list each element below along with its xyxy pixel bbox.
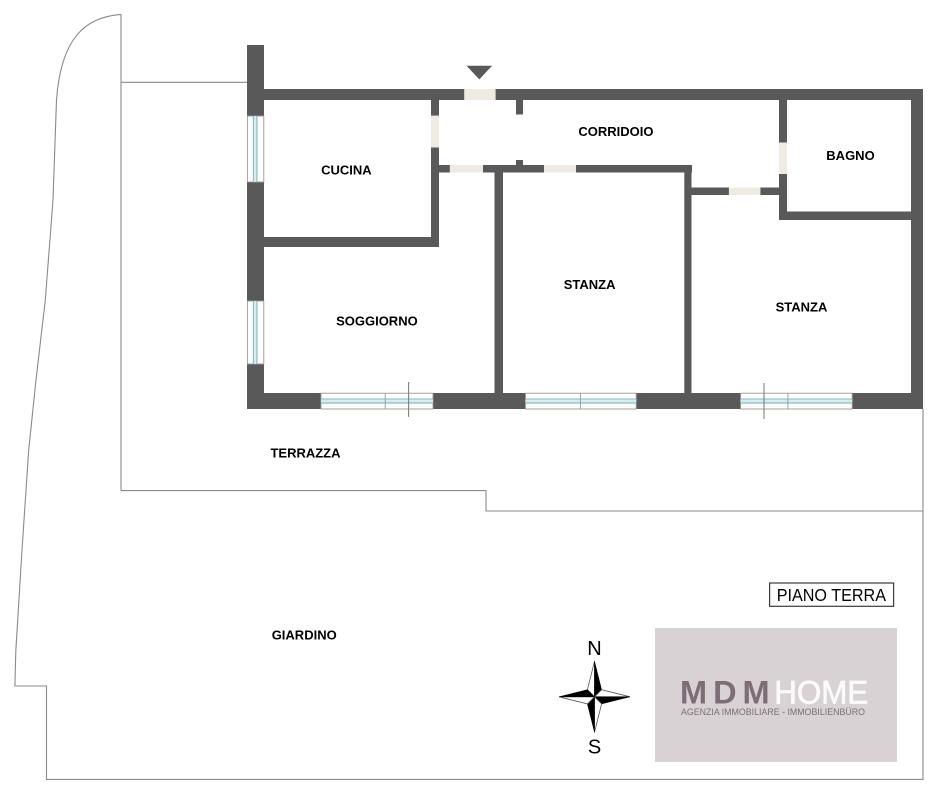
svg-text:AGENZIA IMMOBILIARE - IMMOBILI: AGENZIA IMMOBILIARE - IMMOBILIENBÜRO [681, 707, 865, 717]
svg-text:BAGNO: BAGNO [826, 148, 874, 163]
svg-text:MDM: MDM [680, 674, 776, 710]
svg-text:N: N [587, 638, 601, 660]
svg-text:SOGGIORNO: SOGGIORNO [336, 314, 418, 329]
svg-text:STANZA: STANZA [776, 299, 828, 314]
svg-text:STANZA: STANZA [564, 277, 616, 292]
svg-text:PIANO TERRA: PIANO TERRA [777, 585, 887, 605]
svg-text:S: S [588, 737, 601, 759]
svg-text:GIARDINO: GIARDINO [272, 627, 337, 642]
svg-text:CUCINA: CUCINA [321, 163, 372, 178]
svg-text:CORRIDOIO: CORRIDOIO [578, 124, 653, 139]
svg-text:TERRAZZA: TERRAZZA [270, 445, 341, 460]
svg-text:HOME: HOME [774, 674, 868, 710]
